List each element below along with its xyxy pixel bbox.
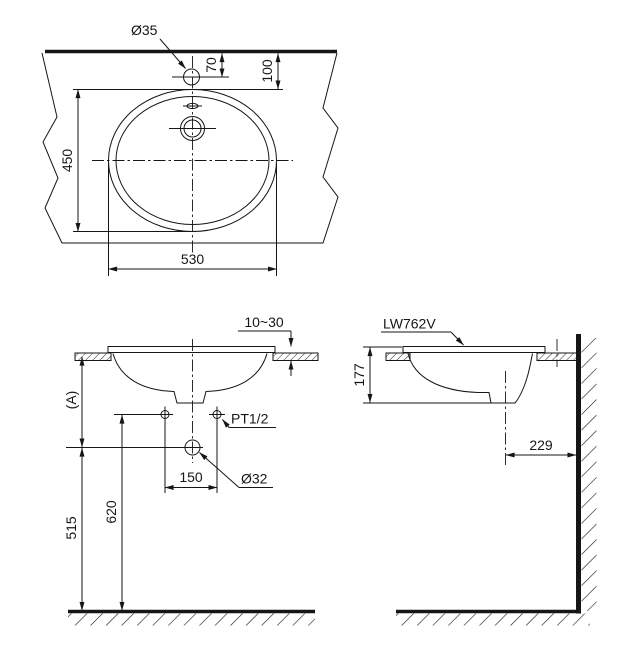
supply-symbol-left (157, 407, 173, 423)
leader-pt12 (223, 420, 230, 428)
basin-rim-side (403, 347, 545, 353)
side-view: LW762V 177 229 (351, 316, 597, 626)
counter-section-side-left (386, 353, 410, 361)
drain-diameter-label: Ø32 (241, 471, 268, 487)
dim-530-label: 530 (181, 251, 205, 267)
dim-100-label: 100 (259, 59, 275, 83)
floor-hatch-front (68, 614, 315, 626)
plan-view: Ø35 70 100 450 530 (42, 22, 338, 276)
dim-450-label: 450 (59, 149, 75, 173)
bowl-profile-front (113, 354, 267, 404)
model-code-label: LW762V (383, 316, 436, 332)
counter-section-left (75, 353, 111, 361)
counter-section-right (273, 353, 318, 361)
leader-faucet-diameter (160, 39, 186, 69)
leader-drain-diameter (200, 453, 240, 488)
front-view: 10~30 (A) PT1/2 150 Ø32 620 515 (63, 314, 318, 626)
dim-229-label: 229 (529, 437, 553, 453)
faucet-diameter-label: Ø35 (131, 22, 158, 38)
dim-150-label: 150 (179, 469, 203, 485)
washbasin-installation-diagram: Ø35 70 100 450 530 (0, 0, 636, 670)
technical-drawing-page: Ø35 70 100 450 530 (0, 0, 636, 670)
side-extension-lines (363, 347, 491, 403)
countertop-outline (42, 53, 338, 243)
dim-620-label: 620 (103, 500, 119, 524)
dim-70-label: 70 (203, 57, 219, 73)
floor-hatch-side (396, 614, 590, 626)
dim-A-label: (A) (63, 391, 79, 410)
basin-rim-front (108, 347, 275, 353)
supply-connection-label: PT1/2 (231, 411, 269, 427)
dim-515-label: 515 (63, 516, 79, 540)
leader-model (451, 332, 464, 345)
bowl-profile-side (408, 354, 533, 404)
dim-rim-thickness-label: 10~30 (244, 314, 284, 330)
wall-hatch-side (582, 338, 597, 611)
dim-177-label: 177 (351, 363, 367, 387)
plan-extension-lines (73, 90, 283, 277)
